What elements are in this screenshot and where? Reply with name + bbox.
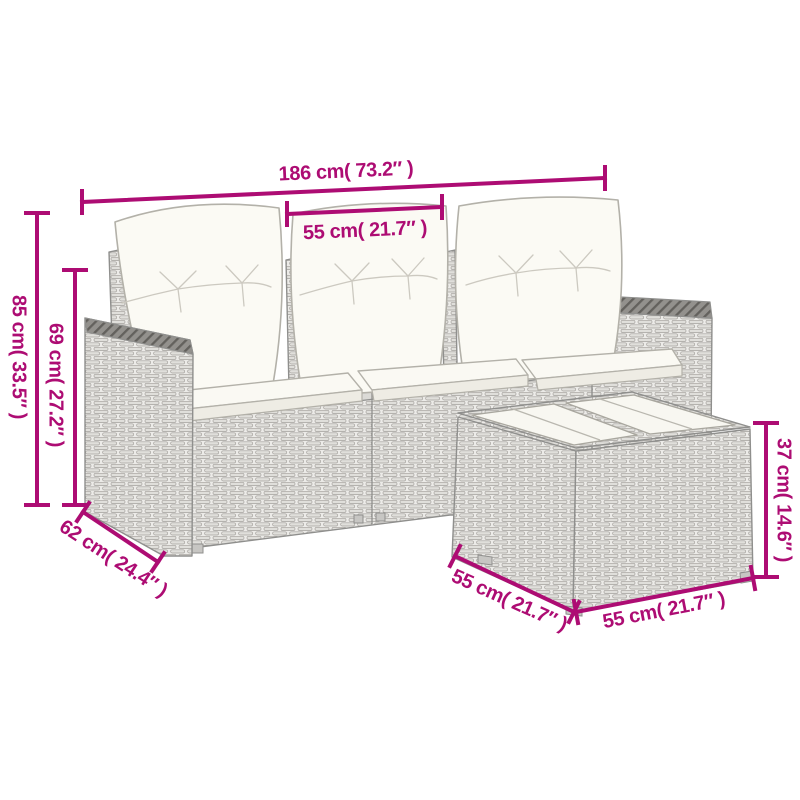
- dim-label-backrest-height: 69 cm( 27.2″ ): [44, 323, 67, 447]
- back-cushion-right: [455, 197, 621, 380]
- sofa-foot: [192, 544, 203, 553]
- dimension-line-backrest-height: [64, 270, 86, 505]
- dim-label-table-height: 37 cm( 14.6″ ): [772, 438, 795, 562]
- sofa-left-armrest-face: [85, 318, 193, 556]
- product-dimension-diagram: 186 cm( 73.2″ ) 55 cm( 21.7″ ) 85 cm( 33…: [0, 0, 800, 800]
- sofa-foot: [354, 515, 363, 523]
- sofa-foot: [376, 513, 385, 521]
- table-foot: [478, 555, 492, 565]
- dim-label-sofa-height: 85 cm( 33.5″ ): [7, 295, 30, 419]
- furniture-illustration: [0, 0, 800, 800]
